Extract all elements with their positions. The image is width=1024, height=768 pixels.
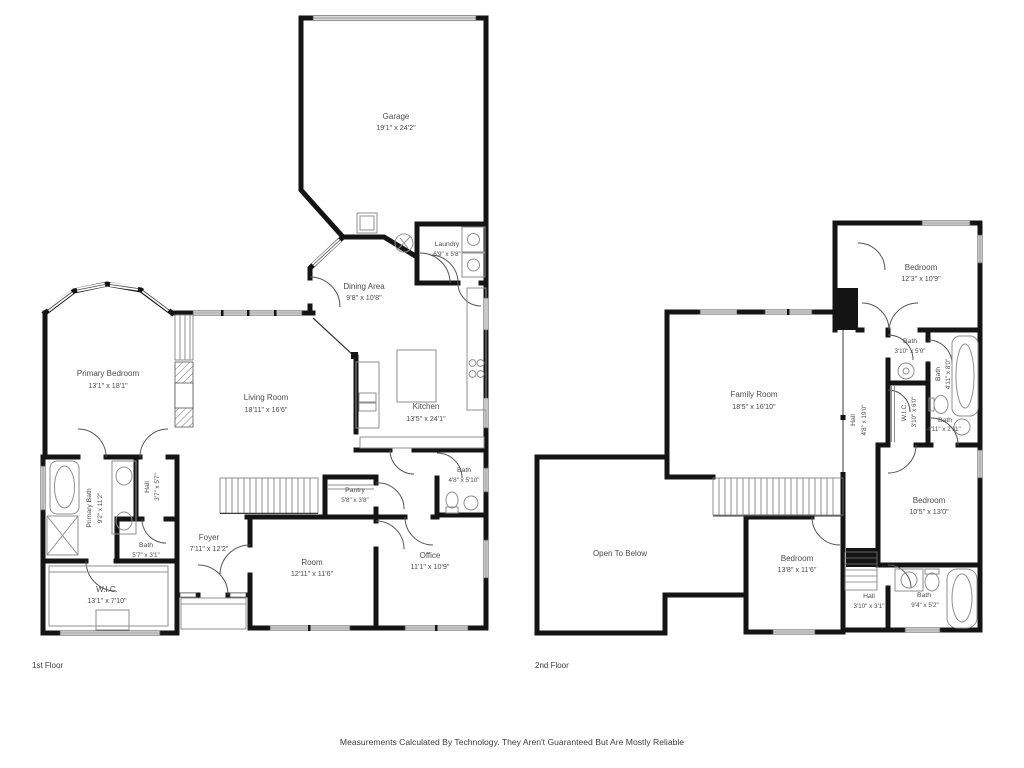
room-label: Room [301,558,323,567]
door-arc-kitchen-hall [390,450,414,474]
door-arc-bedroom1 [862,303,889,330]
room-dims: 12'3" x 10'9" [901,274,941,283]
chimney-block [835,288,858,330]
room-dims: 5'7" x 3'1" [132,552,160,559]
room-dims: 9'2" x 11'2" [97,493,104,524]
door-arc-closet [858,243,885,270]
room-dims: 13'1" x 18'1" [88,381,128,390]
room-label: Primary Bedroom [77,369,140,378]
room-label: Bath [457,467,471,474]
door-arc-primary-bath [78,429,106,457]
room-label: Family Room [730,390,777,399]
door-arc-entry [198,565,228,595]
door-arc-bedroom3 [812,517,840,545]
door-arc-dining [310,277,340,307]
door-arc-room-hall [376,521,404,549]
room-dims: 4'11" x 8'0" [945,359,952,390]
sink [116,467,132,485]
room-dims: 18'11" x 16'6" [245,405,288,414]
island [397,350,436,402]
door-arc-bath4 [888,565,911,588]
room-dims: 7'11" x 12'2" [190,544,229,553]
door-arc-pantry [376,483,404,509]
room-label: Bath [917,592,931,599]
second-floor-plan: Bedroom 12'3" x 10'9" Bath 3'10" x 5'0" … [537,221,982,634]
room-label: Kitchen [413,402,440,411]
bath2-fixtures [446,492,478,513]
room-label: W.I.C. [96,585,118,594]
toilet [446,492,458,508]
room-label: Bedroom [905,263,938,272]
bay-windows [48,285,169,311]
washer [462,227,485,252]
fireplace [175,362,193,427]
room-label: Hall [144,481,151,493]
room-dims: 13'1" x 7'10" [87,596,127,605]
porch [181,598,246,629]
counter [360,437,484,448]
door-arc-office [405,517,433,545]
room-label: Living Room [244,393,289,402]
room-label: Dining Area [343,282,385,291]
stove [469,360,484,378]
room-dims: 11'1" x 10'9" [411,562,450,571]
room-label: Open To Below [593,549,647,558]
floor2-caption: 2nd Floor [535,661,569,670]
stairs-first-floor [220,478,318,514]
room-dims: 12'11" x 11'6" [291,569,334,578]
room-label: Hall [863,593,875,600]
wic-shelves [892,386,895,442]
floor-plan-page: Garage 19'1" x 24'2" Laundry 6'9" x 5'8"… [0,0,1024,768]
room-label: Foyer [199,533,220,542]
sink [901,572,917,588]
room-label: Hall [850,414,857,426]
room-dims: 5'8" x 3'8" [341,497,369,504]
room-label: Garage [383,112,410,121]
door-arc-primary-hall [140,429,168,457]
room-dims: 9'8" x 10'8" [346,293,382,302]
wall-path [250,18,486,628]
room-label: Laundry [435,241,460,248]
room-dims: 3'10" x 5'0" [894,348,925,355]
room-dims: 4'11" x 2'11" [927,426,961,433]
room-dims: 13'8" x 11'6" [778,565,817,574]
closet-shelves [175,315,193,360]
room-label: Bath [903,338,917,345]
sink [464,496,478,510]
walls-first-floor [43,18,486,633]
labels-second-floor: Bedroom 12'3" x 10'9" Bath 3'10" x 5'0" … [593,263,961,610]
room-label: Bedroom [781,554,814,563]
room-label: Pantry [345,487,365,494]
room-label: Primary Bath [86,488,93,528]
tub [947,569,977,628]
room-dims: 4'8" x 19'0" [861,404,868,435]
room-dims: 3'10" x 3'1" [853,603,884,610]
room-label: Bath [935,367,942,381]
sink [359,403,376,411]
door-arc-bedroom1 [889,303,918,330]
floor-plan-canvas: Garage 19'1" x 24'2" Laundry 6'9" x 5'8"… [0,0,1024,768]
room-label: Bath [938,417,952,424]
room-dims: 13'5" x 24'1" [406,414,446,423]
wall-post [351,352,358,359]
first-floor-plan: Garage 19'1" x 24'2" Laundry 6'9" x 5'8"… [41,16,488,635]
sink [898,363,914,379]
bath4-fixtures [895,569,977,628]
room-dims: 3'10" x 6'0" [911,396,918,427]
disclaimer-text: Measurements Calculated By Technology. T… [340,737,684,747]
floor1-caption: 1st Floor [32,661,63,670]
room-label: Office [420,551,441,560]
sidelight-window [230,593,246,597]
room-dims: 3'7" x 5'7" [154,473,161,501]
dresser [96,610,129,630]
wall-path [858,330,980,630]
room-label: Bath [139,542,153,549]
door-arc-bedroom2 [888,445,916,473]
half-wall-diagonal [313,318,353,355]
room-label: W.I.C. [901,403,908,422]
room-dims: 19'1" x 24'2" [376,123,416,132]
sidelight-window [180,593,196,597]
door-arc-bath2 [437,453,462,478]
counter [467,288,486,410]
wall-path [43,457,177,561]
door-arc-laundry-kitchen [458,283,481,306]
stairs-down [845,552,877,590]
room-dims: 4'8" x 5'10" [448,477,479,484]
room-dims: 10'5" x 13'0" [909,507,949,516]
labels-first-floor: Garage 19'1" x 24'2" Laundry 6'9" x 5'8"… [77,112,480,605]
door-arc-laundry [430,255,458,283]
door-arc-bath [142,519,166,543]
room-label: Bedroom [913,496,946,505]
room-dims: 6'9" x 5'8" [433,251,461,258]
room-dims: 9'4" x 5'2" [911,602,939,609]
sink [359,393,376,402]
kitchen-fixtures [356,288,486,448]
room-dims: 18'5" x 16'10" [732,402,776,411]
dryer [462,253,485,277]
